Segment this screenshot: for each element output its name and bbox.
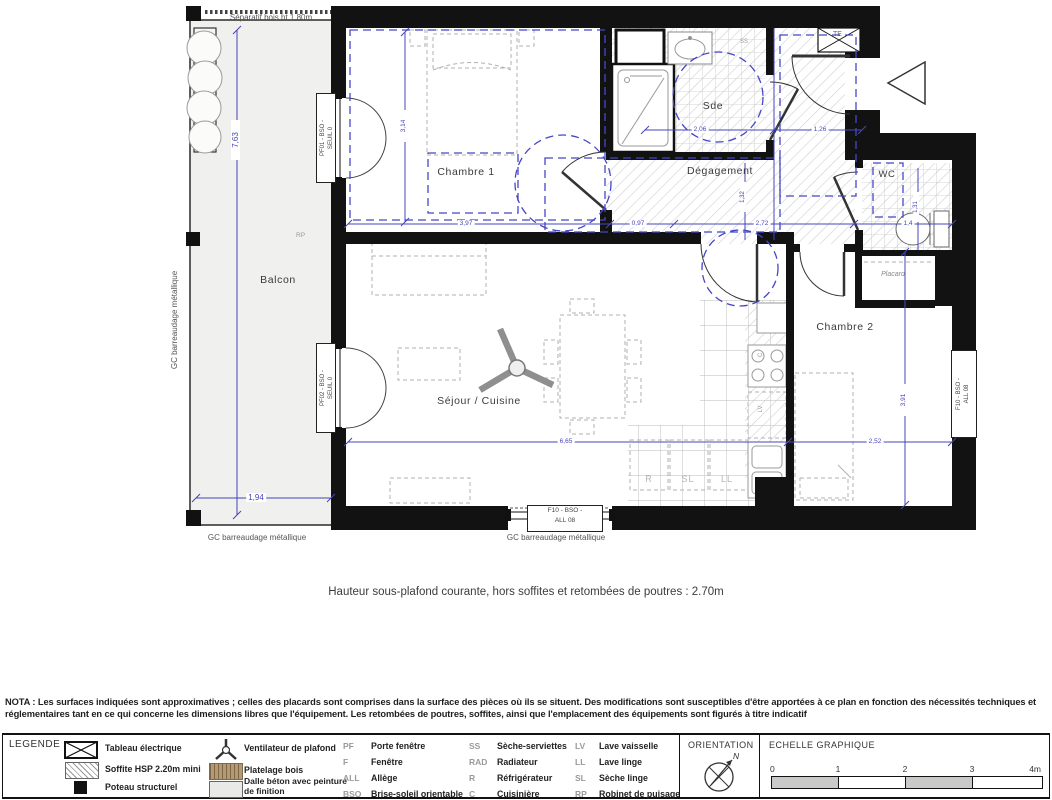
door-chambre2: [800, 252, 844, 296]
legend-abbr-label: Cuisinière: [497, 789, 540, 799]
scale-tick: 4m: [1029, 764, 1041, 774]
dim-chambre2-width: 2,52: [867, 438, 884, 445]
soffit-hatch-icon: [65, 762, 99, 779]
legend-title: LEGENDE: [9, 739, 60, 750]
room-label-degagement: Dégagement: [687, 165, 753, 177]
legend-abbr: RAD: [469, 757, 487, 767]
window-label-f10-right: F10 - BSO - ALL 08: [951, 350, 977, 438]
legend-abbr-label: Brise-soleil orientable: [371, 789, 463, 799]
dim-sejour-width: 6,65: [558, 438, 575, 445]
tag-te: TE: [833, 31, 842, 38]
structural-post-icon: [74, 781, 87, 794]
guardrail-label-bottom-left: GC barreaudage métallique: [208, 533, 306, 542]
bed-chambre2: [795, 373, 853, 500]
dim-balcony-height: 7,63: [231, 120, 240, 160]
scale-tick: 2: [903, 764, 908, 774]
window-label-pf01: PF01 - BSO - SEUIL 0: [316, 93, 336, 183]
legend-abbr: LL: [575, 757, 585, 767]
ceiling-fan-icon: [480, 329, 553, 390]
nota-text: NOTA : Les surfaces indiquées sont appro…: [5, 697, 1049, 721]
cooktop: [748, 345, 786, 387]
kitchen-unit: [757, 303, 788, 333]
dim-degagement-height: 1,32: [740, 182, 746, 212]
room-label-sde: Sde: [703, 100, 723, 112]
window-pf01: [330, 94, 386, 182]
legend-abbr: SL: [575, 773, 586, 783]
shower: [612, 64, 674, 152]
legend-symbol-label: Platelage bois: [244, 765, 303, 775]
tag-ss: SS: [740, 39, 748, 45]
tag-lave-vaisselle: LV: [758, 398, 764, 420]
window-label-f10-bottom: F10 - BSO - ALL 08: [527, 505, 603, 532]
dim-between: 0,97: [630, 220, 647, 227]
dim-chambre1-width: 3,97: [458, 220, 475, 227]
legend-abbr-label: Lave linge: [599, 757, 642, 767]
legend-divider: [679, 735, 680, 797]
sideboard: [390, 478, 470, 503]
entry-arrow: [888, 62, 925, 104]
door-chambre1: [562, 152, 606, 210]
legend-symbol-label: Soffite HSP 2.20m mini: [105, 764, 201, 774]
dim-entry-width: 1,26: [812, 126, 829, 133]
legend-abbr: ALL: [343, 773, 360, 783]
orientation-title: ORIENTATION: [688, 740, 754, 750]
room-label-chambre1: Chambre 1: [437, 166, 494, 178]
guardrail-label-bottom-center: GC barreaudage métallique: [507, 533, 605, 542]
coffee-table: [398, 348, 460, 380]
legend-abbr: SS: [469, 741, 480, 751]
door-sejour: [701, 244, 757, 302]
legend-abbr-label: Porte fenêtre: [371, 741, 425, 751]
legend-abbr: PF: [343, 741, 354, 751]
room-label-wc: WC: [878, 169, 895, 180]
scale-tick: 1: [836, 764, 841, 774]
dim-wc-height: 1,31: [913, 192, 919, 222]
separator-note: Séparatif bois ht 1.80m: [230, 13, 312, 22]
window-pf02: [330, 344, 386, 432]
legend-abbr-label: Radiateur: [497, 757, 538, 767]
legend-band: LEGENDE Tableau électrique Soffite HSP 2…: [2, 733, 1050, 799]
ceiling-height-caption: Hauteur sous-plafond courante, hors soff…: [0, 586, 1052, 598]
north-label: N: [733, 751, 739, 761]
tag-rp: RP: [296, 232, 305, 239]
legend-symbol-label: Dalle béton avec peinture de finition: [244, 777, 356, 797]
dim-degagement-width: 2,72: [754, 220, 771, 227]
legend-symbol-label: Tableau électrique: [105, 743, 182, 753]
legend-abbr: LV: [575, 741, 585, 751]
legend-abbr: RP: [575, 789, 587, 799]
ceiling-fan-legend-icon: [209, 737, 243, 763]
legend-divider: [759, 735, 760, 797]
legend-symbol-label: Poteau structurel: [105, 782, 177, 792]
dim-balcony-width: 1,94: [246, 493, 266, 502]
legend-symbol-label: Ventilateur de plafond: [244, 743, 336, 753]
floor-plan-drawing: [0, 0, 1052, 565]
legend-abbr: F: [343, 757, 348, 767]
tag-lave-linge: LL: [721, 474, 733, 484]
dim-sde-width: 2,06: [692, 126, 709, 133]
scale-title: ECHELLE GRAPHIQUE: [769, 740, 875, 750]
room-label-balcon: Balcon: [260, 274, 296, 286]
tag-refrigerateur: R: [645, 474, 653, 484]
guardrail-label-left: GC barreaudage métallique: [170, 220, 179, 420]
electrical-panel-icon: [63, 740, 99, 760]
window-label-pf02: PF02 - BSO - SEUIL 0: [316, 343, 336, 433]
dim-chambre2-height: 3,91: [900, 384, 907, 416]
dining-table: [544, 299, 641, 434]
concrete-slab-icon: [209, 781, 243, 798]
legend-abbr: C: [469, 789, 475, 799]
balcony-area: [186, 6, 331, 526]
room-label-placard: Placard: [881, 271, 905, 278]
room-label-chambre2: Chambre 2: [816, 321, 873, 333]
floor-plan-page: Séparatif bois ht 1.80m Balcon Chambre 1…: [0, 0, 1052, 800]
scale-bar: [771, 776, 1043, 789]
bed-chambre1: [410, 30, 534, 155]
tag-cuisiniere: C: [758, 346, 764, 364]
toilet: [896, 211, 949, 247]
tag-seche-linge: SL: [681, 474, 694, 484]
scale-tick: 3: [970, 764, 975, 774]
legend-abbr-label: Allège: [371, 773, 397, 783]
legend-abbr: R: [469, 773, 475, 783]
legend-abbr: BSO: [343, 789, 361, 799]
scale-tick: 0: [770, 764, 775, 774]
legend-abbr-label: Lave vaisselle: [599, 741, 658, 751]
legend-abbr-label: Robinet de puisage: [599, 789, 680, 799]
legend-abbr-label: Réfrigérateur: [497, 773, 552, 783]
washbasin: [668, 32, 712, 64]
legend-abbr-label: Fenêtre: [371, 757, 403, 767]
wood-decking-icon: [209, 763, 243, 780]
dim-chambre1-height: 3,14: [400, 110, 407, 142]
room-label-sejour-cuisine: Séjour / Cuisine: [437, 395, 521, 407]
legend-abbr-label: Sèche linge: [599, 773, 648, 783]
legend-abbr-label: Sèche-serviettes: [497, 741, 567, 751]
sofa: [372, 243, 486, 295]
